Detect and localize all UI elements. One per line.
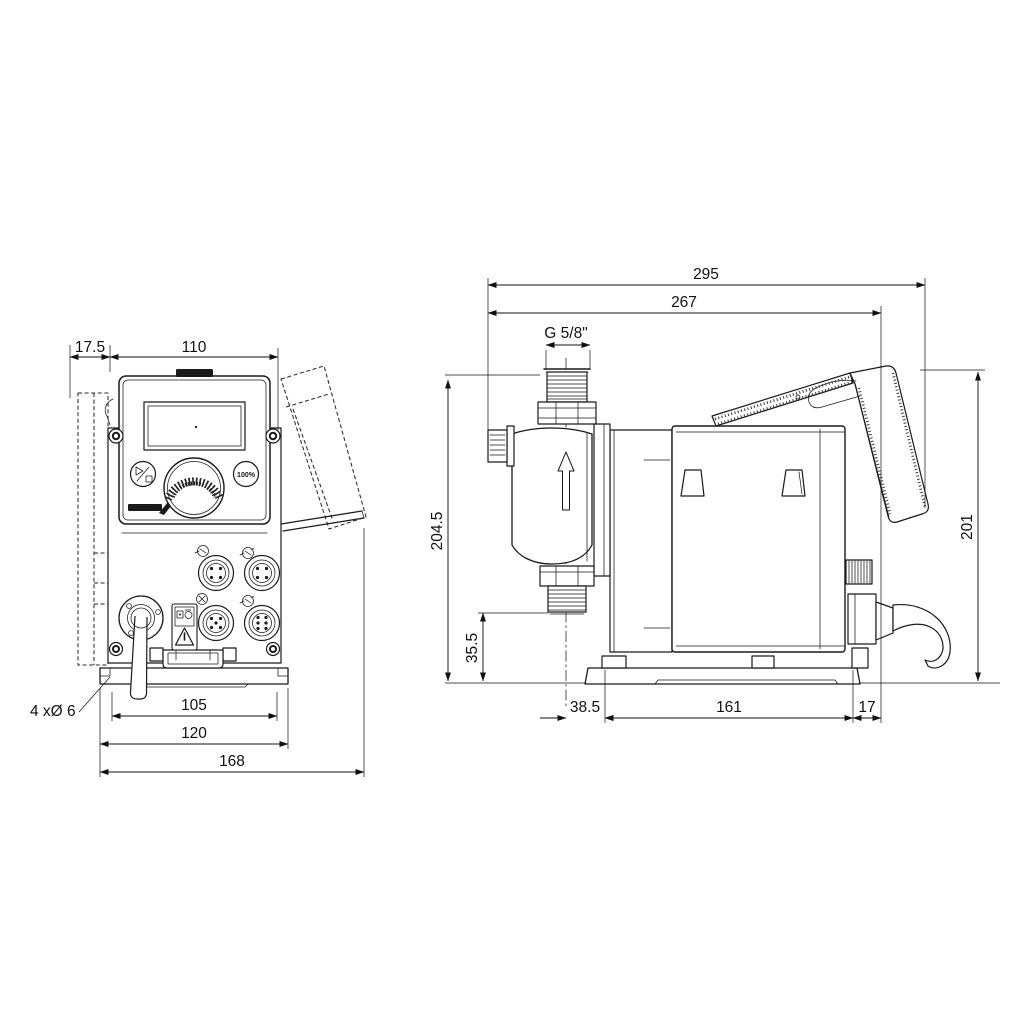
dim-front-offset: 38.5 (570, 699, 600, 716)
hundred-percent-label: 100% (237, 472, 256, 479)
bracket-hook (105, 399, 113, 425)
dim-rear-height: 201 (959, 514, 976, 540)
panel-top-tab (176, 369, 213, 377)
dim-outlet-height: 35.5 (464, 633, 481, 663)
dim-rear-offset: 17 (858, 699, 875, 716)
front-view: 100% (30, 339, 366, 777)
dim-total-width: 168 (219, 753, 245, 770)
mounting-clamp (150, 648, 236, 668)
dosing-head (488, 369, 610, 614)
motor-section (610, 430, 672, 652)
dim-thread-size: G 5/8" (544, 325, 587, 342)
dim-body-depth: 267 (671, 294, 697, 311)
suction-connection (540, 566, 594, 614)
priming-valve-knob (488, 426, 514, 466)
display-dot (195, 426, 197, 428)
side-view: 295 267 G 5/8" 204.5 35.5 201 (429, 266, 1000, 723)
dim-height: 204.5 (429, 512, 446, 551)
control-panel: 100% (119, 369, 270, 533)
mounting-base-front (100, 668, 288, 687)
power-cable-side (893, 605, 950, 668)
dim-total-depth: 295 (693, 266, 719, 283)
dim-offset-left: 17.5 (75, 339, 105, 356)
label-bolt-holes: 4 xØ 6 (30, 703, 76, 720)
dim-width-top: 110 (182, 339, 207, 356)
warning-label (172, 604, 197, 650)
dim-base-length: 161 (716, 699, 742, 716)
pump-dimensional-drawing: 100% (0, 0, 1024, 1024)
technical-drawing-page: 100% (0, 0, 1024, 1024)
main-housing-side (672, 426, 845, 652)
discharge-connection (538, 369, 596, 424)
dim-base-outer: 120 (181, 725, 207, 742)
rear-threaded-stub (846, 560, 872, 584)
tilted-cover-hidden-outline (281, 366, 366, 531)
dim-base-inner: 105 (181, 697, 207, 714)
mounting-base-side (585, 648, 868, 684)
